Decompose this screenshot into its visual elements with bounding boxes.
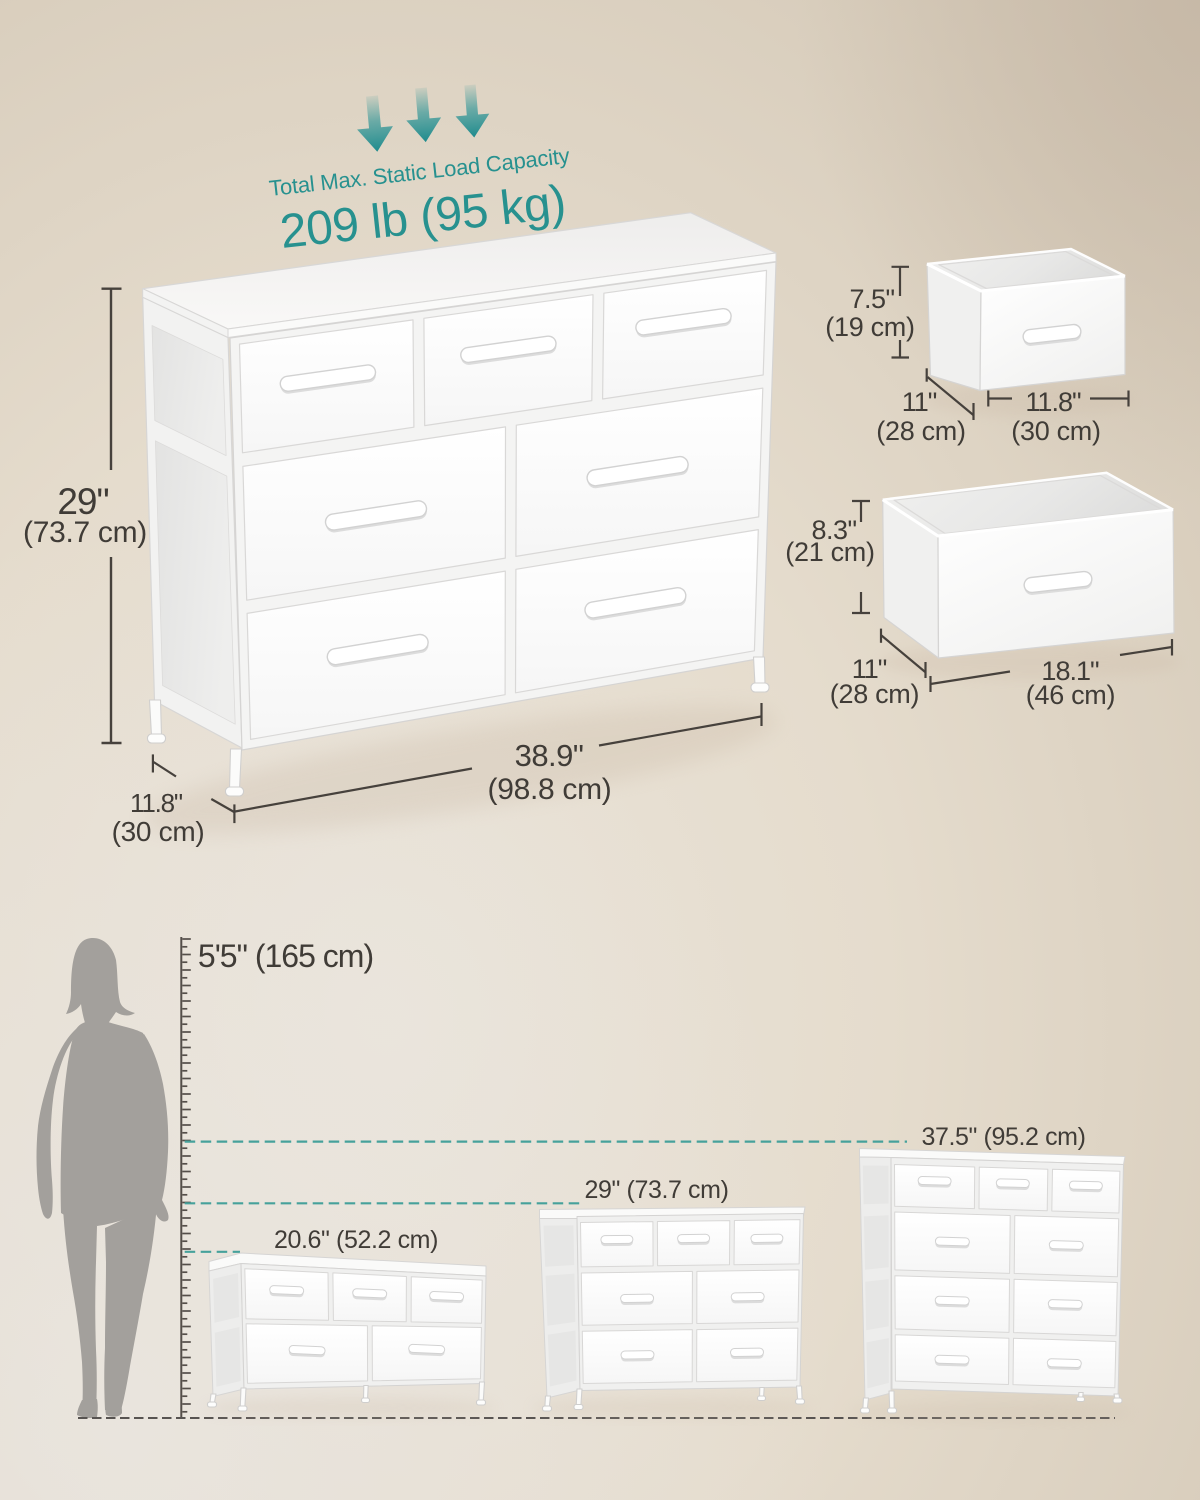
svg-text:(46 cm): (46 cm) <box>1026 680 1115 710</box>
svg-text:29" (73.7 cm): 29" (73.7 cm) <box>584 1176 728 1204</box>
svg-text:37.5" (95.2 cm): 37.5" (95.2 cm) <box>921 1123 1085 1151</box>
svg-text:5'5" (165 cm): 5'5" (165 cm) <box>198 938 373 974</box>
svg-text:38.9": 38.9" <box>515 738 584 773</box>
svg-text:11.8": 11.8" <box>1025 387 1081 417</box>
svg-text:11": 11" <box>902 387 937 417</box>
svg-text:(19 cm): (19 cm) <box>825 312 914 342</box>
svg-text:(28 cm): (28 cm) <box>876 416 965 446</box>
svg-text:(98.8 cm): (98.8 cm) <box>488 773 612 806</box>
svg-text:(30 cm): (30 cm) <box>1011 416 1100 446</box>
svg-text:(21 cm): (21 cm) <box>785 537 874 567</box>
svg-text:(30 cm): (30 cm) <box>112 816 205 847</box>
svg-text:7.5": 7.5" <box>849 284 894 314</box>
svg-text:20.6" (52.2 cm): 20.6" (52.2 cm) <box>274 1226 438 1254</box>
svg-text:11.8": 11.8" <box>130 788 183 818</box>
svg-text:(28 cm): (28 cm) <box>830 679 919 709</box>
svg-text:(73.7 cm): (73.7 cm) <box>23 516 147 549</box>
